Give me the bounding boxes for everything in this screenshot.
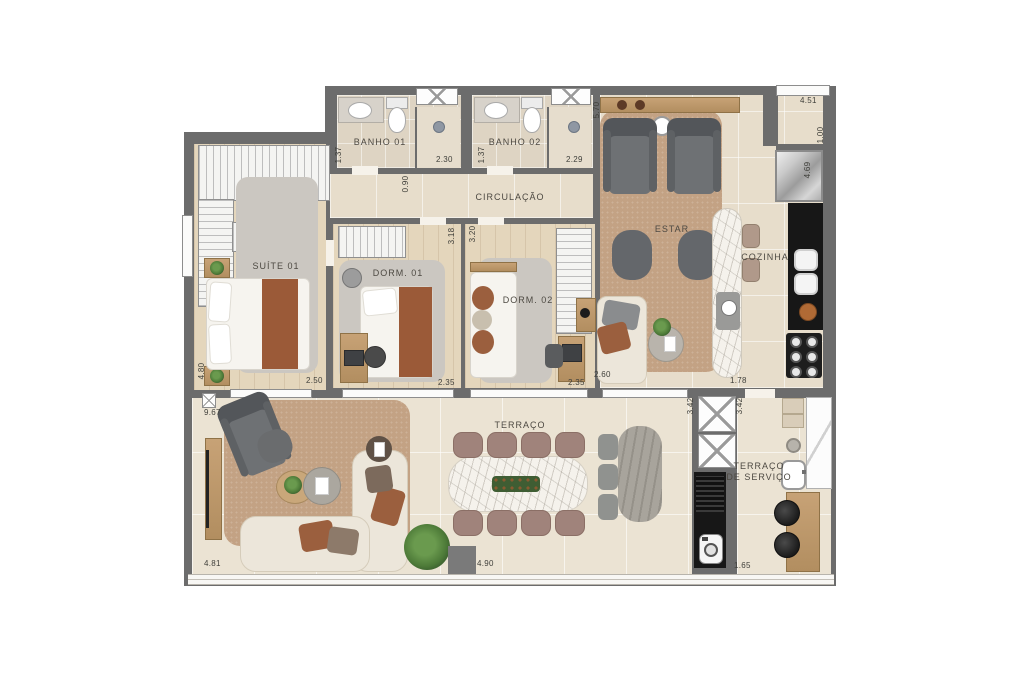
- dorm01-fan: [342, 268, 362, 288]
- top-right-ledge: [776, 85, 830, 96]
- servico-seat-1: [774, 500, 800, 526]
- suite-door: [326, 240, 334, 266]
- dim-dorm02-height: 3.20: [469, 223, 477, 245]
- banho02-sink-basin: [484, 102, 508, 119]
- circulacao-floor: [330, 174, 593, 218]
- estar-armchair-1-seat: [609, 136, 651, 194]
- dorm01-bed-cover: [399, 287, 432, 377]
- terraco-column: [448, 546, 476, 574]
- dorm02-terrace-door: [470, 389, 588, 398]
- dorm02-laptop: [562, 344, 582, 362]
- washer-drum: [704, 543, 718, 557]
- terraco-servico-label: TERRAÇO DE SERVIÇO: [726, 461, 792, 484]
- estar-console-bowl-2: [635, 100, 645, 110]
- banho02-label: BANHO 02: [485, 137, 545, 148]
- dim-suite-width: 2.50: [306, 377, 323, 385]
- suite-pillow-1: [208, 281, 233, 322]
- cooktop-burner-6: [806, 366, 818, 378]
- banho01-shower-head: [433, 121, 445, 133]
- dim-banho01-width: 1.37: [335, 144, 343, 166]
- dorm01-terrace-door: [342, 389, 454, 398]
- servico-door: [806, 397, 832, 489]
- dorm02-headboard: [470, 262, 517, 272]
- suite01-label: SUÍTE 01: [246, 261, 306, 272]
- suite-nightstand-plant-bottom: [210, 369, 224, 383]
- estar-terrace-door: [602, 389, 688, 398]
- servico-opening: [745, 389, 775, 398]
- dorm02-pillow-tan: [472, 310, 492, 330]
- dining-chair-top-2: [487, 432, 517, 458]
- estar-lamp: [580, 308, 590, 318]
- terraco-oval-table-plant: [284, 476, 302, 494]
- kitchen-island-sink: [721, 300, 737, 316]
- estar-armchair-2-seat: [673, 136, 715, 194]
- cooktop-burner-5: [790, 366, 802, 378]
- dining-chair-top-3: [521, 432, 551, 458]
- dim-dorm02-width: 2.35: [568, 379, 585, 387]
- dining-chair-top-4: [555, 432, 585, 458]
- estar-armchair-1-arm-left: [603, 130, 611, 192]
- banho01-window: [416, 88, 458, 105]
- cozinha-label: COZINHA: [740, 252, 790, 263]
- banho01-door: [352, 166, 378, 175]
- estar-armchair-1: [603, 118, 657, 200]
- dorm02-door: [478, 217, 504, 225]
- suite-bed-runner: [262, 279, 298, 369]
- cozinha-sink-2: [794, 273, 818, 295]
- terraco-sofa-pillow-2: [364, 464, 393, 493]
- dining-chair-bottom-1: [453, 510, 483, 536]
- dorm01-door: [420, 217, 446, 225]
- dim-estar-height: 5.70: [593, 99, 601, 121]
- servico-seat-2: [774, 532, 800, 558]
- circulacao-label: CIRCULAÇÃO: [470, 192, 550, 203]
- dorm01-label: DORM. 01: [368, 268, 428, 279]
- estar-coffee-table-card: [664, 336, 676, 352]
- shaft-box-1: [698, 396, 736, 432]
- suite-pillow-2: [208, 323, 232, 364]
- servico-fixture: [786, 438, 801, 453]
- dining-chair-bottom-4: [555, 510, 585, 536]
- dim-cozinha-width: 1.78: [730, 377, 747, 385]
- dim-cozinha-height: 4.69: [804, 159, 812, 181]
- dorm02-chair: [545, 344, 563, 368]
- terraco-plant: [404, 524, 450, 570]
- banho02-shower-head: [568, 121, 580, 133]
- bench-stool-3: [598, 494, 618, 520]
- estar-label: ESTAR: [647, 224, 697, 235]
- banho02-window: [551, 88, 591, 105]
- dorm02-pillow-brown-1: [472, 286, 494, 310]
- dim-top-right: 4.51: [800, 97, 817, 105]
- floor-plan-canvas: BANHO 01 BANHO 02 CIRCULAÇÃO SUÍTE 01 DO…: [0, 0, 1024, 683]
- dim-suite-height: 4.80: [198, 360, 206, 382]
- terraco-servico-label-line1: TERRAÇO: [726, 461, 792, 472]
- cozinha-fridge: [775, 150, 823, 202]
- dorm01-pillow: [362, 287, 399, 316]
- dining-chair-bottom-2: [487, 510, 517, 536]
- estar-armchair-2: [667, 118, 721, 200]
- banho02-door: [487, 166, 513, 175]
- estar-console-bowl-1: [617, 100, 627, 110]
- banho01-label: BANHO 01: [350, 137, 410, 148]
- terrace-glass-railing: [188, 574, 834, 585]
- bench-stool-2: [598, 464, 618, 490]
- cooktop-burner-4: [806, 351, 818, 363]
- dim-banho02-width: 1.37: [478, 144, 486, 166]
- estar-coffee-table-plant: [653, 318, 671, 336]
- dim-terraco-width-2: 4.90: [477, 560, 494, 568]
- dim-recuo: 1.00: [817, 124, 825, 146]
- dim-servico-width: 1.65: [734, 562, 751, 570]
- estar-armchair-1-arm-right: [649, 130, 657, 192]
- cooktop-burner-3: [790, 351, 802, 363]
- bench-stool-1: [598, 434, 618, 460]
- dim-terraco-height: 9.67: [204, 409, 221, 417]
- dim-circulacao: 0.90: [402, 173, 410, 195]
- dim-dorm01-height: 3.18: [448, 225, 456, 247]
- estar-ottoman-1: [612, 230, 652, 280]
- servico-cabinet-2: [782, 414, 804, 428]
- suite-nightstand-plant-top: [210, 261, 224, 275]
- terraco-sofa-pillow-4: [326, 526, 359, 556]
- dining-chair-bottom-3: [521, 510, 551, 536]
- terraco-stone-bench: [618, 426, 662, 522]
- dim-shaft-right: 3.42: [736, 395, 744, 417]
- dining-chair-top-1: [453, 432, 483, 458]
- dim-dorm01-width: 2.35: [438, 379, 455, 387]
- washer-dial: [702, 537, 708, 541]
- terraco-servico-label-line2: DE SERVIÇO: [726, 472, 792, 483]
- laundry-vent: [696, 476, 724, 512]
- terraco-label: TERRAÇO: [490, 420, 550, 431]
- island-chair-1: [742, 224, 760, 248]
- cozinha-sink-1: [794, 249, 818, 271]
- dorm02-pillow-brown-2: [472, 330, 494, 354]
- banho02-toilet-bowl: [523, 107, 541, 133]
- banho01-toilet-bowl: [388, 107, 406, 133]
- suite-left-window: [182, 215, 193, 277]
- dorm01-closet: [338, 226, 406, 258]
- terrace-corner-box: [202, 393, 216, 408]
- cozinha-bowl: [799, 303, 817, 321]
- dim-terraco-width-1: 4.81: [204, 560, 221, 568]
- terraco-round-table-card: [315, 477, 329, 495]
- estar-armchair-2-arm-left: [667, 130, 675, 192]
- terraco-side-table-card: [374, 442, 385, 457]
- dorm01-laptop: [344, 350, 364, 366]
- terraco-table-runner: [492, 476, 540, 492]
- dorm02-label: DORM. 02: [498, 295, 558, 306]
- terraco-tv: [206, 450, 209, 528]
- servico-cabinet-1: [782, 398, 804, 414]
- estar-armchair-2-arm-right: [713, 130, 721, 192]
- dim-shaft-left: 3.42: [687, 395, 695, 417]
- cooktop-burner-2: [806, 336, 818, 348]
- dim-banho02-depth: 2.29: [566, 156, 583, 164]
- dorm01-chair: [364, 346, 386, 368]
- dim-estar-sofa: 2.60: [594, 371, 611, 379]
- dim-banho01-depth: 2.30: [436, 156, 453, 164]
- banho01-sink-basin: [348, 102, 372, 119]
- cooktop-burner-1: [790, 336, 802, 348]
